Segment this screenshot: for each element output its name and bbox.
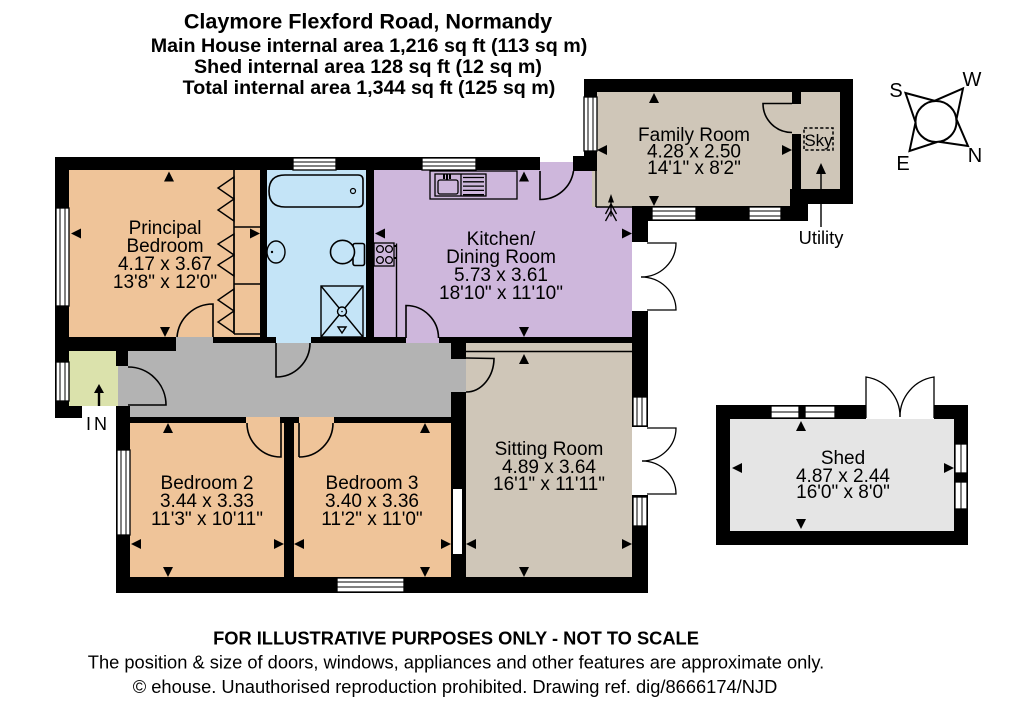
svg-text:18'10" x 11'10": 18'10" x 11'10"	[439, 283, 563, 304]
svg-text:16'0" x 8'0": 16'0" x 8'0"	[796, 482, 890, 503]
svg-text:13'8" x 12'0": 13'8" x 12'0"	[113, 272, 217, 293]
svg-text:W: W	[963, 69, 982, 91]
svg-text:14'1" x 8'2": 14'1" x 8'2"	[647, 158, 741, 179]
svg-text:The position & size of doors,: The position & size of doors, windows, a…	[88, 652, 824, 673]
svg-text:Shed internal area 128 sq ft (: Shed internal area 128 sq ft (12 sq m)	[194, 56, 542, 78]
svg-text:E: E	[896, 153, 909, 175]
svg-text:11'3" x 10'11": 11'3" x 10'11"	[151, 509, 263, 530]
svg-text:Utility: Utility	[799, 227, 845, 248]
svg-text:© ehouse. Unauthorised reprodu: © ehouse. Unauthorised reproduction proh…	[133, 676, 778, 697]
svg-text:Sky: Sky	[804, 131, 833, 150]
svg-text:11'2" x 11'0": 11'2" x 11'0"	[321, 509, 422, 530]
svg-text:Main House internal area 1,216: Main House internal area 1,216 sq ft (11…	[151, 35, 588, 57]
svg-text:S: S	[889, 80, 902, 102]
svg-text:N: N	[968, 145, 982, 167]
svg-text:FOR ILLUSTRATIVE PURPOSES ONLY: FOR ILLUSTRATIVE PURPOSES ONLY - NOT TO …	[213, 628, 699, 649]
svg-text:Total internal area 1,344 sq f: Total internal area 1,344 sq ft (125 sq …	[183, 77, 556, 99]
svg-text:IN: IN	[86, 414, 110, 434]
svg-text:16'1" x 11'11": 16'1" x 11'11"	[493, 474, 605, 495]
svg-text:Claymore Flexford Road, Norman: Claymore Flexford Road, Normandy	[184, 9, 552, 34]
